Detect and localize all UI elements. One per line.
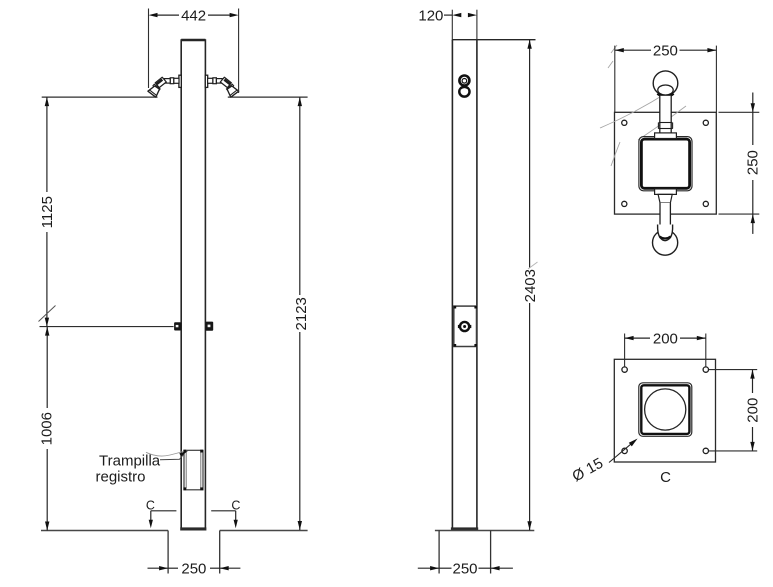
svg-text:C: C xyxy=(146,499,155,513)
svg-text:1006: 1006 xyxy=(39,412,56,445)
svg-text:250: 250 xyxy=(653,43,678,60)
svg-text:2403: 2403 xyxy=(522,269,539,302)
svg-text:200: 200 xyxy=(653,331,678,348)
svg-text:Trampilla: Trampilla xyxy=(99,453,161,470)
svg-text:250: 250 xyxy=(181,561,206,578)
svg-text:250: 250 xyxy=(452,561,477,578)
svg-text:registro: registro xyxy=(96,469,146,486)
svg-text:2123: 2123 xyxy=(293,297,310,330)
svg-text:120: 120 xyxy=(418,8,443,25)
svg-text:250: 250 xyxy=(745,150,762,175)
svg-text:C: C xyxy=(231,499,240,513)
svg-text:200: 200 xyxy=(744,398,761,423)
svg-text:442: 442 xyxy=(181,8,206,25)
svg-text:1125: 1125 xyxy=(39,196,56,228)
svg-text:C: C xyxy=(660,469,671,486)
